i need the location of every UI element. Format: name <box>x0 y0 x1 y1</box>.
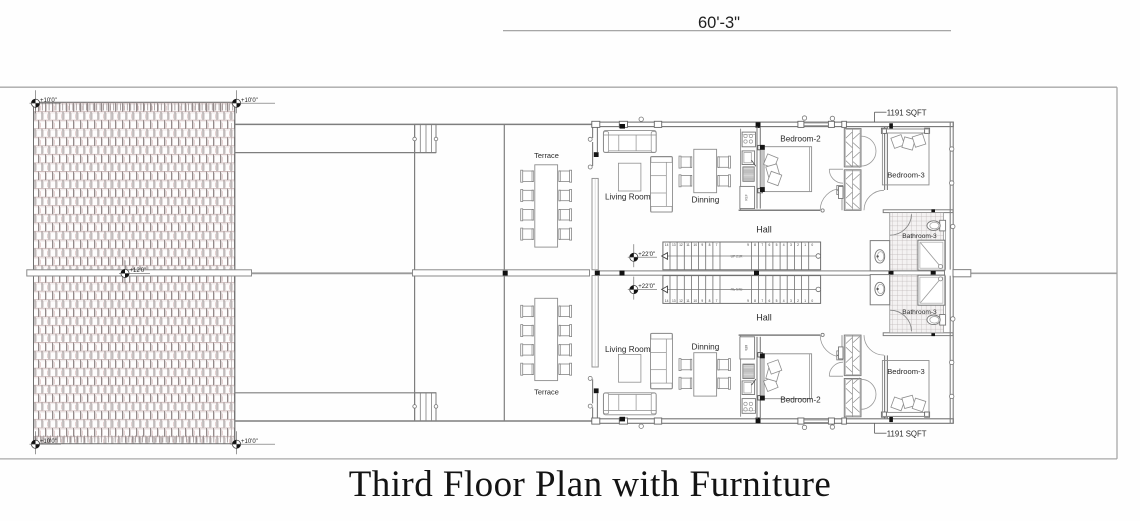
svg-text:60'-3": 60'-3" <box>698 14 740 32</box>
svg-text:+10'0": +10'0" <box>241 98 258 104</box>
svg-text:4: 4 <box>783 299 785 303</box>
svg-text:Living Room: Living Room <box>605 345 651 354</box>
svg-text:1191 SQFT: 1191 SQFT <box>887 108 927 117</box>
svg-text:13: 13 <box>672 243 676 247</box>
svg-text:2: 2 <box>797 299 799 303</box>
svg-text:+22'0": +22'0" <box>638 284 655 290</box>
svg-text:Hall: Hall <box>756 225 772 235</box>
svg-text:14: 14 <box>665 299 669 303</box>
svg-text:Dinning: Dinning <box>692 343 720 352</box>
svg-text:4: 4 <box>783 243 785 247</box>
svg-text:2: 2 <box>797 243 799 247</box>
svg-text:1191 SQFT: 1191 SQFT <box>887 430 927 439</box>
svg-text:9: 9 <box>701 299 703 303</box>
svg-text:8: 8 <box>754 299 756 303</box>
svg-text:5: 5 <box>776 243 778 247</box>
svg-text:Terrace: Terrace <box>534 151 559 160</box>
svg-text:Bedroom-3: Bedroom-3 <box>887 367 925 376</box>
svg-text:Hall: Hall <box>756 313 772 323</box>
svg-text:Bathroom-3: Bathroom-3 <box>902 233 937 240</box>
svg-text:7: 7 <box>716 243 718 247</box>
svg-text:12: 12 <box>679 299 683 303</box>
svg-text:9: 9 <box>747 243 749 247</box>
svg-text:6: 6 <box>768 243 770 247</box>
svg-text:3: 3 <box>790 299 792 303</box>
svg-text:7: 7 <box>716 299 718 303</box>
svg-text:12: 12 <box>679 243 683 247</box>
svg-text:Living Room: Living Room <box>605 192 651 201</box>
svg-text:8: 8 <box>709 299 711 303</box>
svg-text:Third Floor Plan with Furnitur: Third Floor Plan with Furniture <box>349 464 832 505</box>
svg-text:+22'0": +22'0" <box>638 252 655 258</box>
svg-text:1: 1 <box>804 243 806 247</box>
svg-text:10: 10 <box>693 299 697 303</box>
svg-text:Bedroom-2: Bedroom-2 <box>780 134 821 143</box>
svg-text:+10'0": +10'0" <box>40 439 57 445</box>
svg-text:8: 8 <box>754 243 756 247</box>
svg-text:Bathroom-3: Bathroom-3 <box>902 309 937 316</box>
svg-text:14: 14 <box>665 243 669 247</box>
svg-text:0: 0 <box>811 299 813 303</box>
svg-text:3: 3 <box>790 243 792 247</box>
svg-text:9: 9 <box>701 243 703 247</box>
svg-text:6: 6 <box>768 299 770 303</box>
svg-text:9: 9 <box>747 299 749 303</box>
svg-text:Bedroom-3: Bedroom-3 <box>887 170 925 179</box>
svg-text:+10'0": +10'0" <box>40 98 57 104</box>
svg-text:7: 7 <box>761 243 763 247</box>
svg-text:Dinning: Dinning <box>692 195 720 204</box>
svg-text:UP 21R: UP 21R <box>731 254 743 258</box>
svg-text:13: 13 <box>672 299 676 303</box>
svg-text:7: 7 <box>761 299 763 303</box>
svg-text:1: 1 <box>804 299 806 303</box>
svg-text:0: 0 <box>811 243 813 247</box>
svg-text:5: 5 <box>776 299 778 303</box>
svg-text:Terrace: Terrace <box>534 387 559 396</box>
svg-text:11: 11 <box>686 299 690 303</box>
svg-text:+12'0": +12'0" <box>130 268 147 274</box>
svg-text:11: 11 <box>686 243 690 247</box>
svg-text:Bedroom-2: Bedroom-2 <box>780 396 821 405</box>
svg-text:10: 10 <box>693 243 697 247</box>
svg-text:REF: REF <box>745 194 749 200</box>
svg-text:+10'0": +10'0" <box>241 439 258 445</box>
svg-text:8: 8 <box>709 243 711 247</box>
